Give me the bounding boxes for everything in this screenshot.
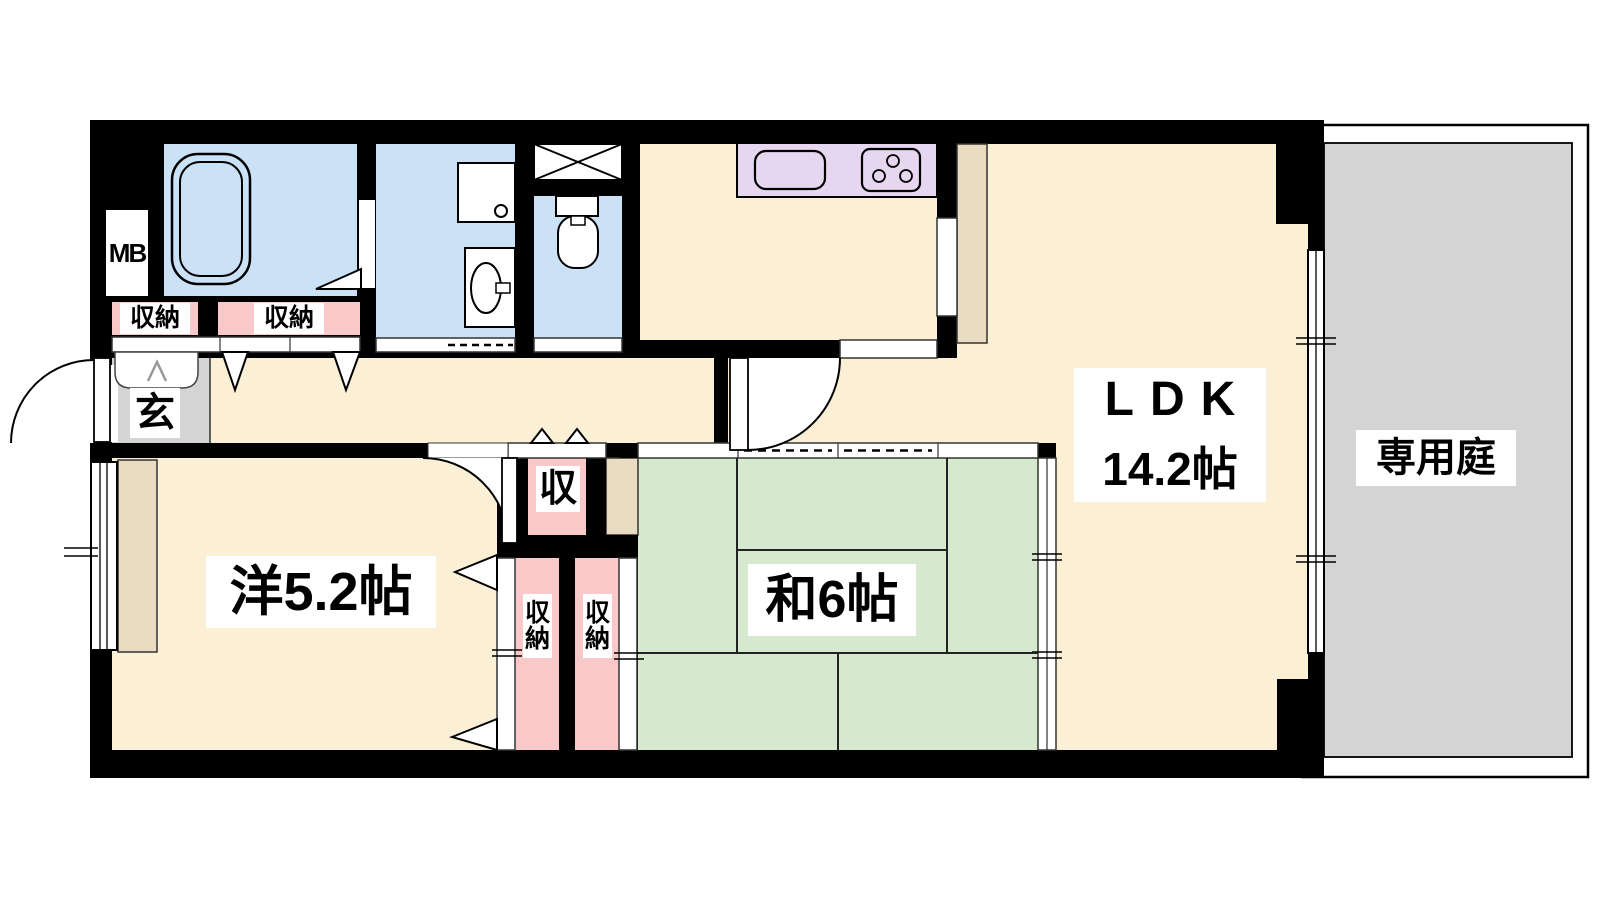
- floor-plan-page: MB 収納 収納 玄 収 収納 収納 洋5.2帖 和6帖 LDK 14.2帖 専…: [0, 0, 1600, 900]
- tatami-sliding-doors-top: [638, 443, 1038, 458]
- entrance-label: 玄: [130, 388, 180, 438]
- small-closet-label: 収: [536, 466, 580, 512]
- tall-closet-left-label: 収納: [523, 594, 552, 658]
- bathroom-floor: [164, 144, 357, 296]
- entrance-step: [115, 352, 198, 388]
- western-door-opening: [428, 443, 508, 458]
- western-window-ledge: [118, 460, 157, 652]
- western-room-label: 洋5.2帖: [206, 556, 436, 628]
- ldk-floor-upper: [957, 144, 1276, 358]
- private-garden-label: 専用庭: [1356, 430, 1516, 486]
- entrance-closet-1-label: 収納: [120, 303, 190, 334]
- toilet-icon: [556, 196, 598, 268]
- washroom-folding-door: [376, 338, 515, 352]
- tall-closet-right-label: 収納: [583, 594, 612, 658]
- toilet-door: [534, 338, 622, 352]
- ldk-name: LDK: [1089, 372, 1252, 427]
- entrance-door: [11, 358, 110, 443]
- ldk-label: LDK 14.2帖: [1074, 368, 1266, 502]
- washing-machine-icon: [465, 248, 515, 327]
- meter-box-label: MB: [106, 212, 148, 294]
- western-room-window: [64, 462, 117, 650]
- small-closet-door: [508, 443, 606, 458]
- kitchen-pass-opening: [840, 340, 937, 358]
- kitchen-wall-opening: [937, 218, 957, 316]
- tokonoma-corner: [606, 458, 638, 535]
- japanese-room-label: 和6帖: [748, 564, 916, 636]
- kitchen-side-counter: [957, 144, 987, 343]
- vent-shaft-icon: [534, 144, 622, 180]
- ldk-size: 14.2帖: [1102, 433, 1238, 499]
- washbasin-icon: [458, 163, 515, 222]
- entrance-closet-2-label: 収納: [254, 303, 324, 334]
